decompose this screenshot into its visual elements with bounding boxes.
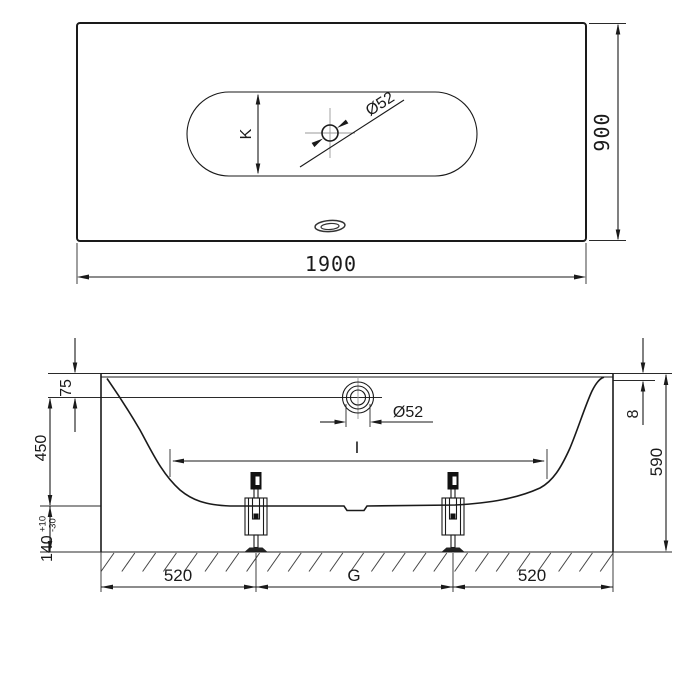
foot-spacing-dimensions: 520 G 520: [101, 552, 613, 592]
dim-length-label: 1900: [305, 252, 357, 276]
drain-diameter-label-side: Ø52: [393, 404, 423, 421]
bathtub-technical-drawing: K Ø52 900: [0, 0, 700, 700]
width-dimension: 900: [589, 24, 626, 241]
rim-thickness-dimension: 8: [625, 338, 645, 425]
side-view: 75 450 140 +10 -30 8: [33, 338, 672, 592]
dim-rim-to-overflow-label: 75: [58, 379, 75, 397]
tub-outer-edge-top: [77, 23, 586, 241]
base-height-dimension: 140 +10 -30: [38, 506, 59, 562]
dim-foot-offset-right-label: 520: [518, 566, 546, 585]
inner-length-label: I: [355, 438, 360, 457]
foot-spacing-label: G: [347, 566, 360, 585]
drain-diameter-dimension-side: Ø52: [320, 404, 433, 427]
tolerance-minus-label: -30: [48, 518, 59, 532]
overflow-symbol: [315, 219, 346, 232]
tub-inner-rim-top: [187, 92, 477, 176]
foot-bracket-right: [442, 472, 464, 552]
drain-diameter-leader-top: Ø52: [300, 89, 404, 167]
dim-width-label: 900: [590, 112, 614, 151]
rim-to-overflow-dimension: 75: [58, 338, 77, 432]
drain-symbol-top: [305, 108, 355, 158]
drain-offset-k-label: K: [238, 128, 255, 139]
dim-foot-offset-left-label: 520: [164, 566, 192, 585]
length-dimension: 1900: [77, 243, 586, 284]
dim-rim-thickness-label: 8: [625, 409, 642, 418]
foot-bracket-left: [245, 472, 267, 552]
top-view: K Ø52 900: [77, 23, 626, 284]
k-dimension: K: [238, 94, 260, 175]
dim-depth-label: 450: [33, 435, 50, 462]
technical-drawing-page: K Ø52 900: [0, 0, 700, 700]
overall-height-dimension: 590: [647, 374, 668, 553]
inner-length-dimension: I: [170, 438, 547, 479]
dim-overall-height-label: 590: [647, 448, 666, 476]
inner-depth-dimension: 450: [33, 398, 52, 507]
dim-base-height-label: 140: [39, 535, 56, 562]
